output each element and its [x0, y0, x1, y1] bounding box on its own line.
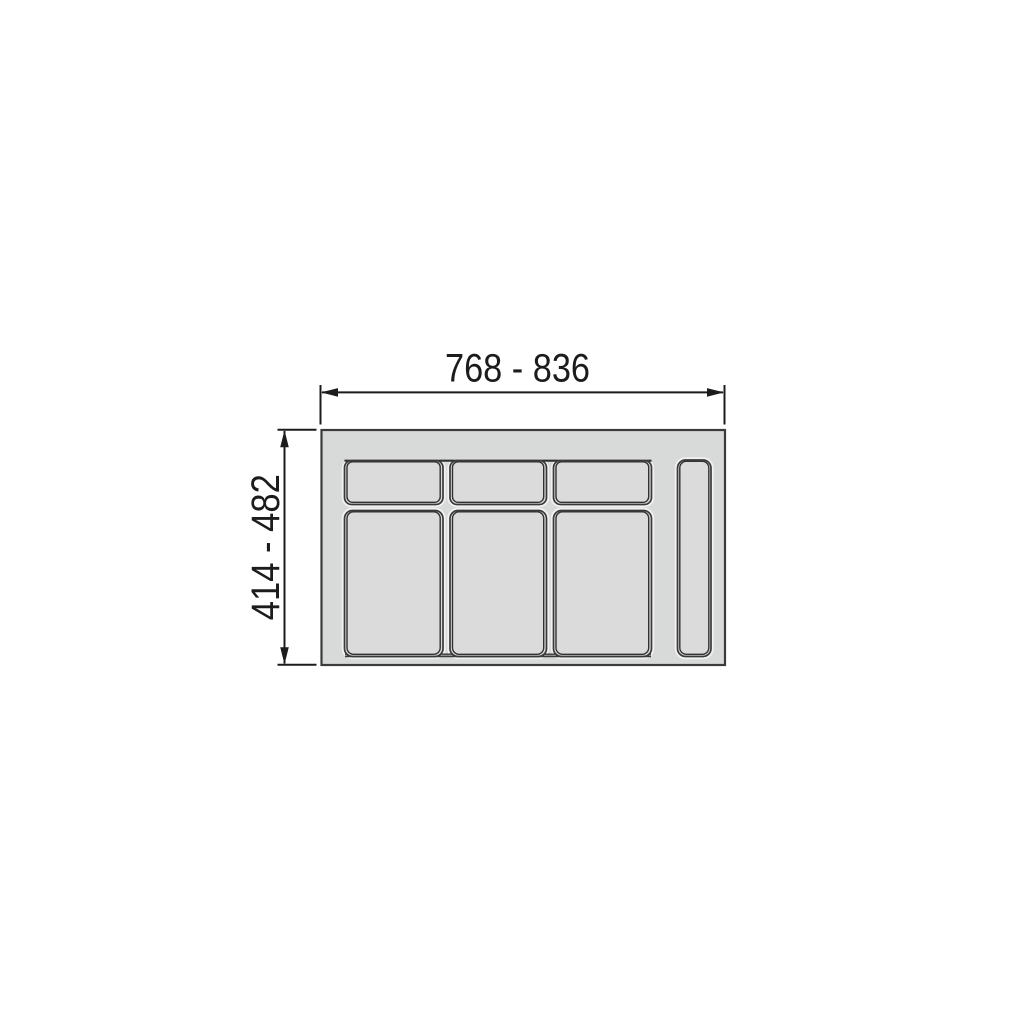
svg-text:414 - 482: 414 - 482: [244, 474, 288, 620]
svg-text:768 - 836: 768 - 836: [445, 347, 590, 391]
